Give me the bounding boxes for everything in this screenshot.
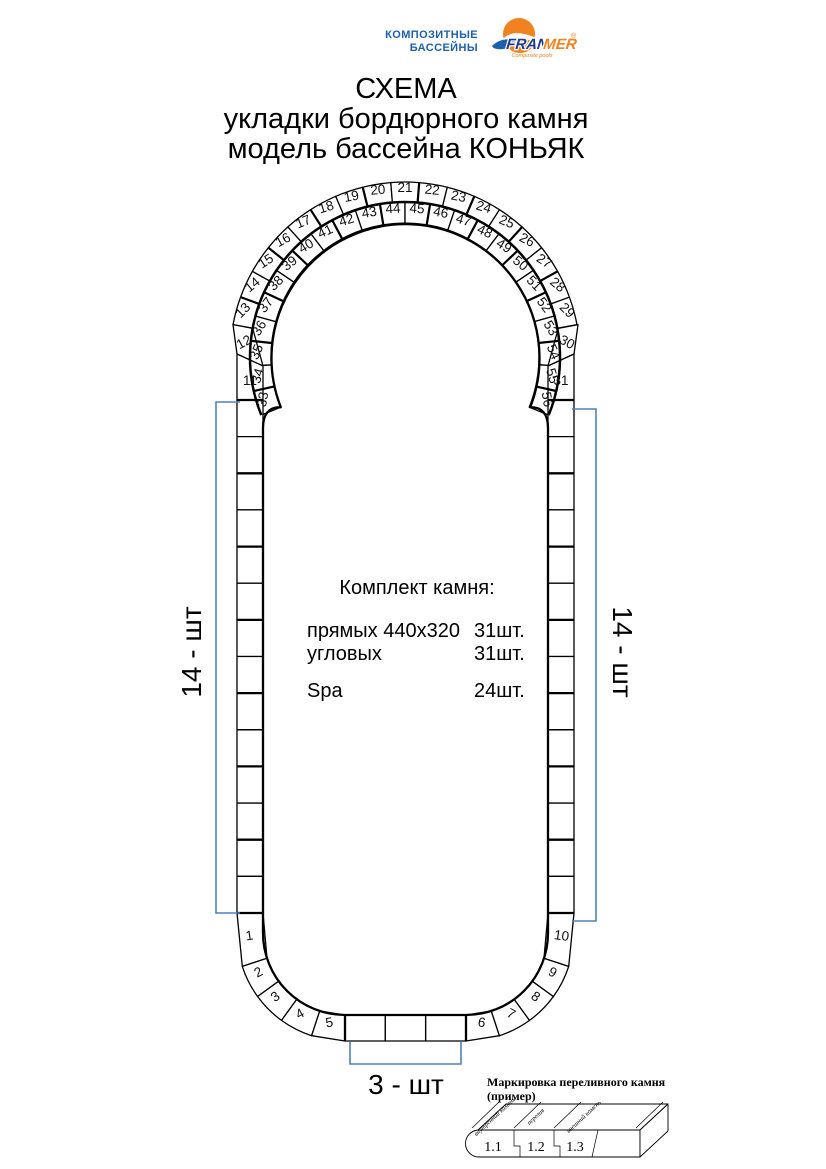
page-title: СХЕМА укладки бордюрного камня модель ба… (224, 73, 589, 165)
stone-number: 33 (254, 391, 271, 408)
stone-number: 21 (397, 180, 412, 195)
straight-stone (237, 840, 263, 877)
kit-row-label-1: угловых (307, 643, 382, 665)
straight-stone (548, 693, 574, 730)
bold-joints-layer (237, 183, 574, 1041)
straight-stone (548, 876, 574, 913)
left-count-label: 14 - шт (176, 606, 207, 697)
logo-text-line1: КОМПОЗИТНЫЕ (385, 29, 478, 41)
straight-stone (426, 1015, 466, 1041)
kit-row-qty-1: 31шт. (474, 643, 525, 665)
brand-tagline: Composite pools (512, 53, 553, 59)
stone-numbers-layer: 3334353637383940414243444546474849505152… (232, 180, 578, 1030)
stone-number: 20 (370, 182, 386, 198)
bottom-count-label: 3 - шт (368, 1069, 444, 1100)
straight-stone (385, 1015, 425, 1041)
title-line3: модель бассейна КОНЬЯК (228, 133, 585, 165)
stone-number: 22 (424, 182, 440, 198)
straight-stone (237, 876, 263, 913)
straight-stone (548, 547, 574, 584)
straight-stone (237, 730, 263, 767)
straight-stone (548, 657, 574, 694)
right-count-label: 14 - шт (607, 606, 638, 697)
pool-border-scheme-page: КОМПОЗИТНЫЕ БАССЕЙНЫ FRAN MER ® Composit… (0, 0, 826, 1169)
legend-cell-1: 1.1 (484, 1140, 502, 1155)
stone-number: 45 (409, 201, 425, 217)
straight-stone (237, 583, 263, 620)
stones-layer (233, 182, 578, 1041)
straight-stone (237, 766, 263, 803)
straight-stone (237, 693, 263, 730)
stone-kit-list: Комплект камня: прямых 440x320 31шт. угл… (307, 577, 525, 702)
legend-title-line1: Маркировка переливного камня (487, 1075, 666, 1089)
kit-row-label-2: Spa (307, 680, 343, 702)
straight-stone (548, 437, 574, 474)
franmer-logo: КОМПОЗИТНЫЕ БАССЕЙНЫ FRAN MER ® Composit… (385, 18, 578, 59)
legend-cell-3: 1.3 (566, 1140, 584, 1155)
straight-stone (548, 766, 574, 803)
right-dimension-bracket (572, 409, 596, 921)
straight-stone (237, 547, 263, 584)
logo-text-line2: БАССЕЙНЫ (410, 41, 478, 54)
overflow-stone-marking-legend: Маркировка переливного камня (пример) вн… (466, 1075, 668, 1157)
straight-stone (237, 803, 263, 840)
brand-wordmark: FRAN MER (505, 36, 577, 53)
straight-stone (548, 803, 574, 840)
stone-number: 23 (450, 187, 468, 205)
stone-number: 56 (539, 391, 556, 408)
straight-stone (237, 657, 263, 694)
kit-heading: Комплект камня: (339, 577, 494, 599)
stone-number: 44 (385, 201, 401, 217)
stone-number: 46 (432, 204, 450, 221)
bottom-dimension-bracket (350, 1042, 461, 1064)
stone-number: 10 (553, 927, 570, 944)
straight-stone (548, 583, 574, 620)
title-line1: СХЕМА (355, 73, 457, 105)
kit-row-qty-2: 24шт. (474, 680, 525, 702)
pool-scheme-diagram: КОМПОЗИТНЫЕ БАССЕЙНЫ FRAN MER ® Composit… (0, 0, 826, 1169)
straight-stone (237, 510, 263, 547)
straight-stone (548, 620, 574, 657)
stone-number: 19 (342, 187, 360, 205)
straight-stone (548, 510, 574, 547)
straight-stone (237, 473, 263, 510)
kit-row-qty-0: 31шт. (474, 620, 525, 642)
stone-number: 43 (360, 204, 378, 221)
kit-row-label-0: прямых 440x320 (307, 620, 460, 642)
legend-cell-2: 1.2 (527, 1140, 545, 1155)
straight-stone (548, 730, 574, 767)
straight-stone (237, 437, 263, 474)
straight-stone (548, 840, 574, 877)
stone-number: 11 (243, 373, 257, 388)
title-line2: укладки бордюрного камня (224, 103, 589, 135)
straight-stone (548, 473, 574, 510)
registered-mark: ® (571, 32, 577, 40)
straight-stone (237, 620, 263, 657)
straight-stone (345, 1015, 385, 1041)
stone-number: 31 (553, 373, 568, 388)
